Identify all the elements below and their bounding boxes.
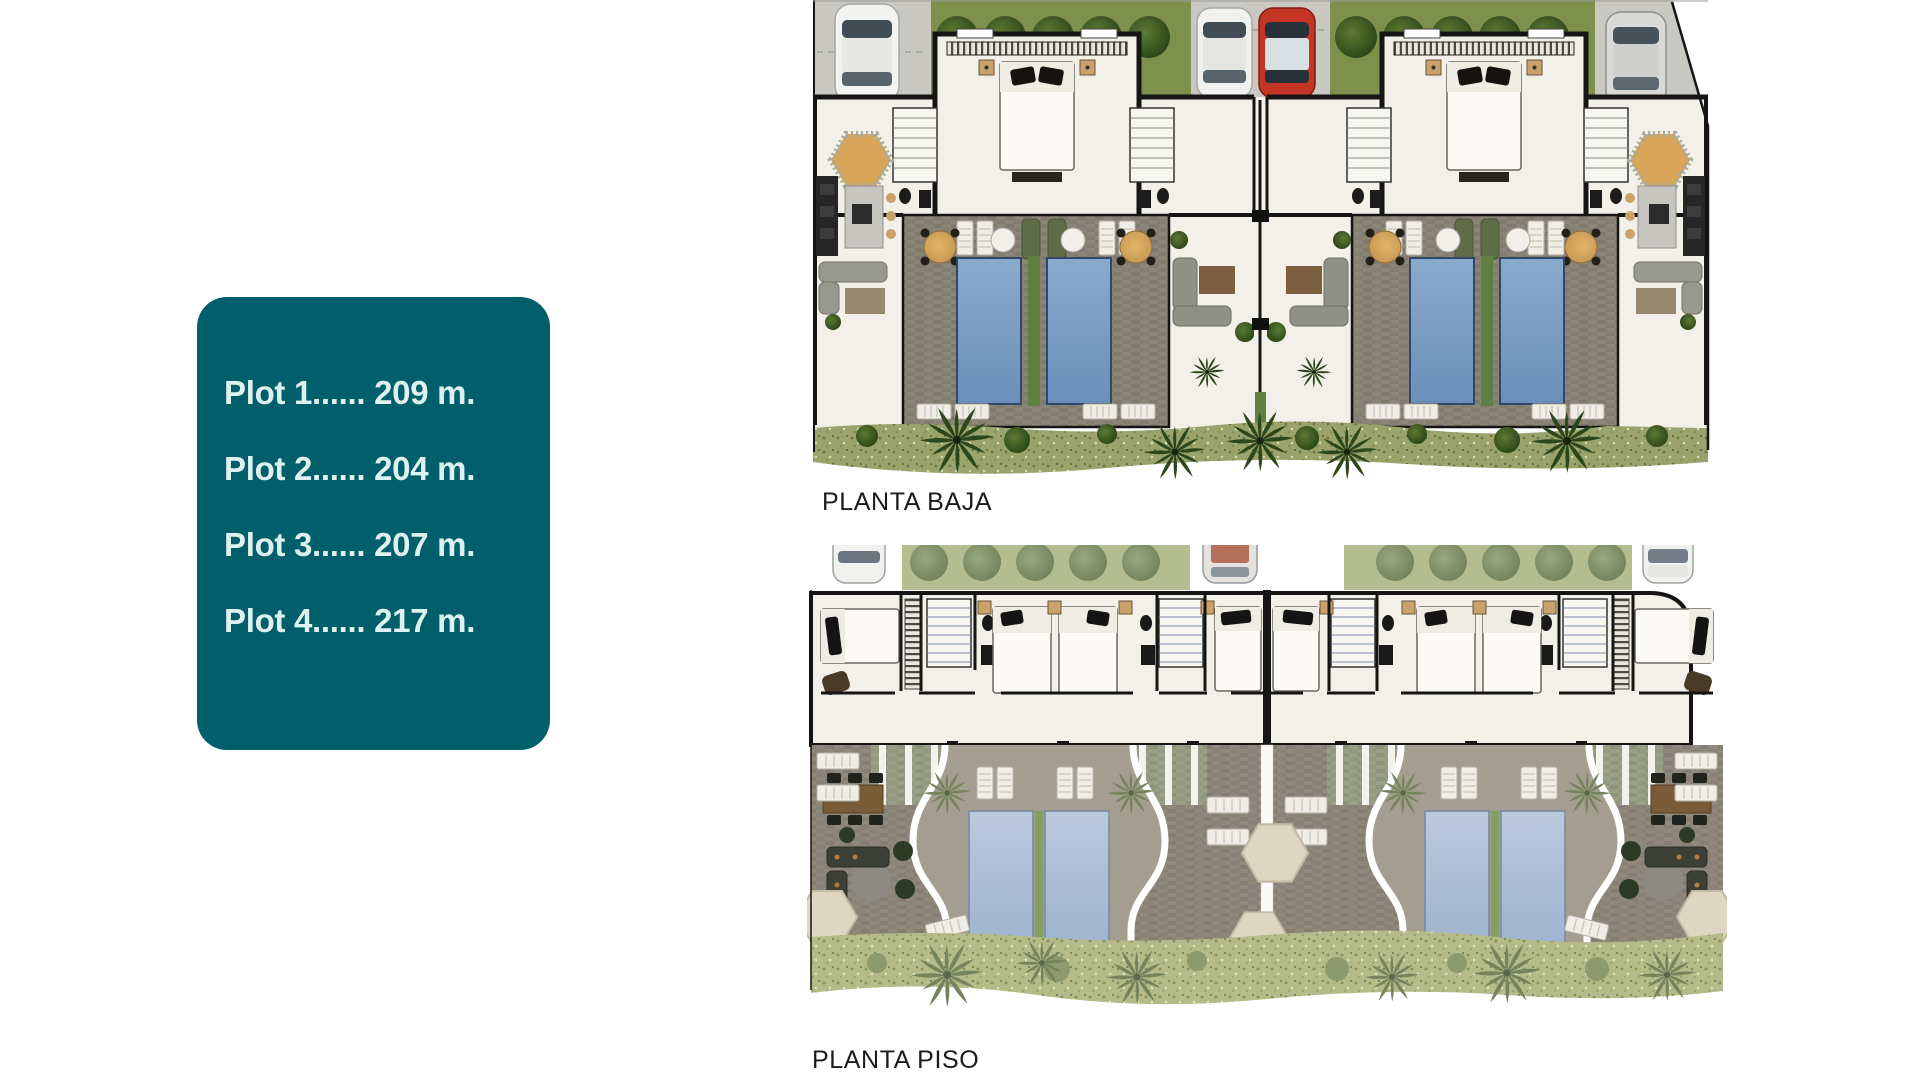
swimming-pool [969, 811, 1033, 943]
car-white [1643, 545, 1693, 583]
plot-size-item: Plot 1...... 209 m. [224, 355, 550, 431]
pool-hedge [1028, 256, 1040, 406]
upper-floor-plan-image [807, 545, 1727, 1050]
plot-size-item: Plot 2...... 204 m. [224, 431, 550, 507]
staircase [1159, 599, 1203, 667]
car-red [1259, 8, 1315, 98]
car-white [835, 4, 899, 102]
plot-sizes-card: Plot 1...... 209 m. Plot 2...... 204 m. … [197, 297, 550, 750]
car-silver [1606, 12, 1666, 106]
swimming-pool [1047, 258, 1111, 404]
swimming-pool [1045, 811, 1109, 943]
plot-size-item: Plot 3...... 207 m. [224, 507, 550, 583]
villa-pair-upper [807, 593, 1265, 993]
car-white [1197, 8, 1252, 98]
ground-floor-label: PLANTA BAJA [822, 488, 992, 517]
upper-floor-label: PLANTA PISO [812, 1046, 979, 1075]
staircase [927, 599, 971, 667]
brochure-page: Plot 1...... 209 m. Plot 2...... 204 m. … [0, 0, 1920, 1080]
ground-floor-plan [807, 0, 1714, 495]
ground-floor-plan-image [807, 0, 1714, 490]
plot-size-item: Plot 4...... 217 m. [224, 583, 550, 659]
upper-floor-plan [807, 545, 1727, 1055]
swimming-pool [957, 258, 1021, 404]
street-hedge [902, 545, 1632, 590]
car-roofbox [1203, 545, 1257, 583]
car-white [833, 545, 885, 583]
